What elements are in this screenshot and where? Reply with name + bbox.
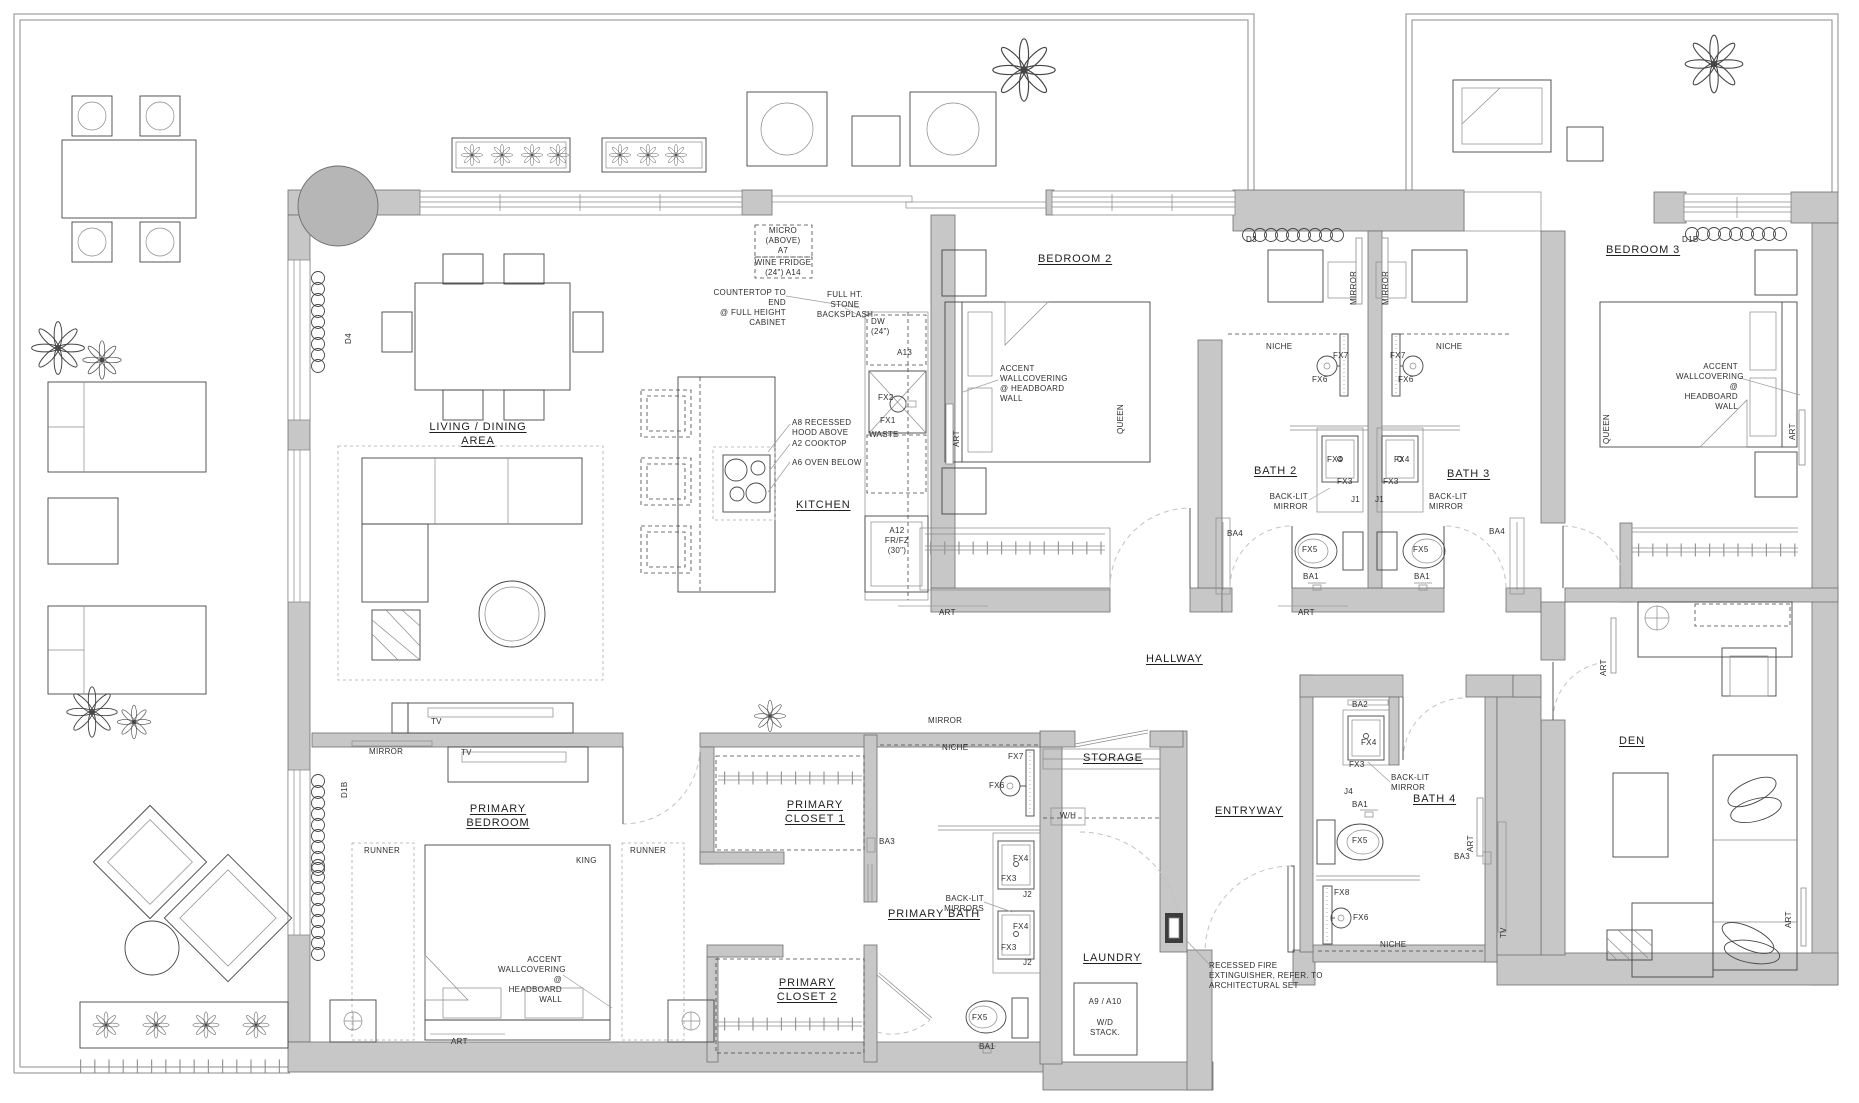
- note-backlit-mirrors-primary-bath: BACK-LIT MIRRORS: [928, 894, 984, 914]
- room-label-storage: STORAGE: [1083, 752, 1143, 766]
- tag-fx7-bath3: FX7: [1390, 351, 1406, 361]
- tag-runner-left: RUNNER: [364, 846, 400, 856]
- note-backlit-mirror-bath2: BACK-LIT MIRROR: [1258, 492, 1308, 512]
- note-accent-wall-primary: ACCENT WALLCOVERING @ HEADBOARD WALL: [498, 955, 562, 1005]
- floor-plan-drawing: [0, 0, 1859, 1103]
- tag-j2-primary-bath-1: J2: [1023, 890, 1032, 900]
- tag-curtain-d1b-bedroom3: D1B: [1682, 235, 1698, 245]
- tag-niche-bath2: NICHE: [1266, 342, 1292, 352]
- tag-fx6-bath3: FX6: [1398, 375, 1414, 385]
- tag-ba4-bath3: BA4: [1489, 527, 1505, 537]
- tag-fx5-bath2: FX5: [1302, 545, 1318, 555]
- room-label-primary-bedroom: PRIMARY BEDROOM: [453, 803, 543, 831]
- tag-fx3-bath3: FX3: [1383, 477, 1399, 487]
- tag-fx5-primary-bath: FX5: [972, 1013, 988, 1023]
- tag-fx2-kitchen: FX2: [878, 393, 894, 403]
- note-backsplash: FULL HT. STONE BACKSPLASH: [814, 290, 876, 320]
- tag-fx3-bath4: FX3: [1349, 760, 1365, 770]
- room-label-bath4: BATH 4: [1413, 793, 1456, 807]
- room-label-laundry: LAUNDRY: [1083, 952, 1142, 966]
- tag-ba1-bath2: BA1: [1303, 572, 1319, 582]
- note-fire-extinguisher: RECESSED FIRE EXTINGUISHER, REFER. TO AR…: [1209, 961, 1323, 991]
- tag-tv-primary: TV: [461, 748, 472, 758]
- room-label-den: DEN: [1619, 735, 1645, 749]
- note-countertop: COUNTERTOP TO END @ FULL HEIGHT CABINET: [698, 288, 786, 328]
- tag-art-bedroom2: ART: [952, 430, 962, 447]
- room-label-bath2: BATH 2: [1254, 465, 1297, 479]
- room-label-primary-closet2: PRIMARY CLOSET 2: [770, 977, 844, 1005]
- note-accent-wall-bedroom3: ACCENT WALLCOVERING @ HEADBOARD WALL: [1676, 362, 1738, 412]
- tag-art-primary: ART: [451, 1037, 468, 1047]
- tag-fx4-bath2: FX4: [1327, 455, 1343, 465]
- tag-art-den-right: ART: [1784, 911, 1794, 928]
- tag-fx7-bath2: FX7: [1333, 351, 1349, 361]
- tag-king: KING: [576, 856, 597, 866]
- floor-plan: LIVING / DINING AREA KITCHEN BEDROOM 2 B…: [0, 0, 1859, 1103]
- tag-fx7-primary-bath: FX7: [1008, 752, 1024, 762]
- room-label-kitchen: KITCHEN: [796, 499, 851, 513]
- tag-mirror-nook-right: MIRROR: [1381, 271, 1391, 305]
- tag-wd-stack: W/D STACK.: [1086, 1018, 1124, 1038]
- tag-fx6-bath4: FX6: [1353, 913, 1369, 923]
- tag-fx1-kitchen: FX1: [880, 416, 896, 426]
- tag-ba1-primary-bath: BA1: [979, 1042, 995, 1052]
- tag-fx8-bath4: FX8: [1334, 888, 1350, 898]
- tag-j1-bath3: J1: [1375, 495, 1384, 505]
- tag-fx4-bath3: FX4: [1394, 455, 1410, 465]
- note-backlit-mirror-bath4: BACK-LIT MIRROR: [1391, 773, 1429, 793]
- tag-ba1-bath4: BA1: [1352, 800, 1368, 810]
- tag-ba4-bath2: BA4: [1227, 529, 1243, 539]
- tag-ba3-primary-bath: BA3: [879, 837, 895, 847]
- tag-fx6-primary-bath: FX6: [989, 781, 1005, 791]
- tag-fx3-bath2: FX3: [1337, 477, 1353, 487]
- tag-j1-bath2: J1: [1351, 495, 1360, 505]
- tag-ba1-bath3: BA1: [1414, 572, 1430, 582]
- tag-fx5-bath4: FX5: [1352, 836, 1368, 846]
- tag-mirror-primary-bath: MIRROR: [928, 716, 962, 726]
- note-microwave: MICRO (ABOVE) A7: [753, 226, 813, 256]
- tag-fx4-bath4: FX4: [1361, 738, 1377, 748]
- note-accent-wall-bedroom2: ACCENT WALLCOVERING @ HEADBOARD WALL: [1000, 364, 1068, 404]
- tag-waste: WASTE: [869, 430, 899, 440]
- tag-fridge-freezer: A12 FR/FZ (30"): [873, 526, 921, 556]
- tag-art-bedroom3: ART: [1788, 423, 1798, 440]
- tag-fx6-bath2: FX6: [1312, 375, 1328, 385]
- note-wine-fridge: WINE FRIDGE (24") A14: [753, 258, 813, 278]
- tag-curtain-d4: D4: [344, 333, 354, 344]
- tag-niche-primary-bath: NICHE: [942, 743, 968, 753]
- tag-washer-dryer-unit: A9 / A10: [1080, 997, 1130, 1007]
- tag-art-bath4-wall: ART: [1466, 835, 1476, 852]
- tag-ba3-bath4: BA3: [1454, 852, 1470, 862]
- tag-a13: A13: [897, 348, 912, 358]
- tag-runner-right: RUNNER: [630, 846, 666, 856]
- tag-fx4-primary-bath-2: FX4: [1013, 922, 1029, 932]
- tag-queen-bedroom3: QUEEN: [1602, 414, 1612, 444]
- tag-dishwasher: DW (24"): [871, 317, 890, 337]
- room-label-primary-closet1: PRIMARY CLOSET 1: [778, 799, 852, 827]
- room-label-hallway: HALLWAY: [1146, 653, 1203, 667]
- tag-queen-bedroom2: QUEEN: [1116, 404, 1126, 434]
- tag-fx5-bath3: FX5: [1413, 545, 1429, 555]
- tag-mirror-nook-left: MIRROR: [1349, 271, 1359, 305]
- tag-curtain-d1b-primary: D1B: [340, 782, 350, 798]
- tag-niche-bath3: NICHE: [1436, 342, 1462, 352]
- room-label-bedroom2: BEDROOM 2: [1038, 253, 1112, 267]
- tag-tv-den-wall: TV: [1499, 927, 1509, 938]
- note-backlit-mirror-bath3: BACK-LIT MIRROR: [1429, 492, 1467, 512]
- tag-art-hallway-left: ART: [939, 608, 956, 618]
- tag-fx3-primary-bath-2: FX3: [1001, 943, 1017, 953]
- room-label-bath3: BATH 3: [1447, 468, 1490, 482]
- room-label-living: LIVING / DINING AREA: [413, 421, 543, 449]
- tag-fx4-primary-bath-1: FX4: [1013, 854, 1029, 864]
- tag-j2-primary-bath-2: J2: [1023, 958, 1032, 968]
- room-label-bedroom3: BEDROOM 3: [1606, 244, 1680, 258]
- tag-art-hallway-right: ART: [1298, 608, 1315, 618]
- room-label-entryway: ENTRYWAY: [1215, 805, 1283, 819]
- tag-art-den-left: ART: [1599, 659, 1609, 676]
- tag-curtain-d3: D3: [1246, 235, 1257, 245]
- tag-ba2-bath4: BA2: [1352, 700, 1368, 710]
- tag-fx3-primary-bath-1: FX3: [1001, 874, 1017, 884]
- note-hood: A8 RECESSED HOOD ABOVE: [792, 418, 851, 438]
- tag-mirror-primary: MIRROR: [369, 747, 403, 757]
- note-oven: A6 OVEN BELOW: [792, 458, 862, 468]
- tag-water-heater: W/H: [1051, 811, 1085, 821]
- tag-niche-bath4: NICHE: [1380, 940, 1406, 950]
- tag-j4-bath4: J4: [1344, 787, 1353, 797]
- note-cooktop: A2 COOKTOP: [792, 439, 847, 449]
- tag-tv-living: TV: [431, 717, 442, 727]
